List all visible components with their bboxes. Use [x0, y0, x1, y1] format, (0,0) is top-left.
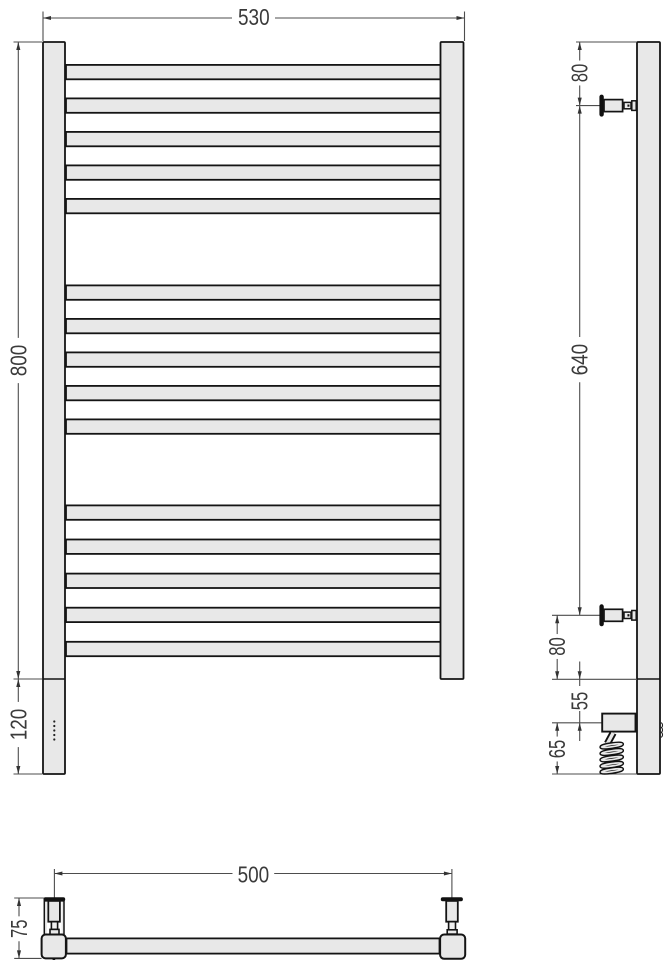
- svg-text:640: 640: [567, 344, 593, 376]
- svg-text:120: 120: [5, 709, 31, 741]
- svg-text:55: 55: [567, 692, 593, 711]
- svg-text:500: 500: [238, 862, 270, 888]
- svg-text:65: 65: [544, 740, 570, 759]
- svg-text:80: 80: [544, 637, 570, 656]
- svg-text:80: 80: [567, 64, 593, 83]
- svg-text:800: 800: [5, 345, 31, 377]
- svg-text:75: 75: [6, 920, 32, 939]
- svg-text:530: 530: [238, 4, 270, 30]
